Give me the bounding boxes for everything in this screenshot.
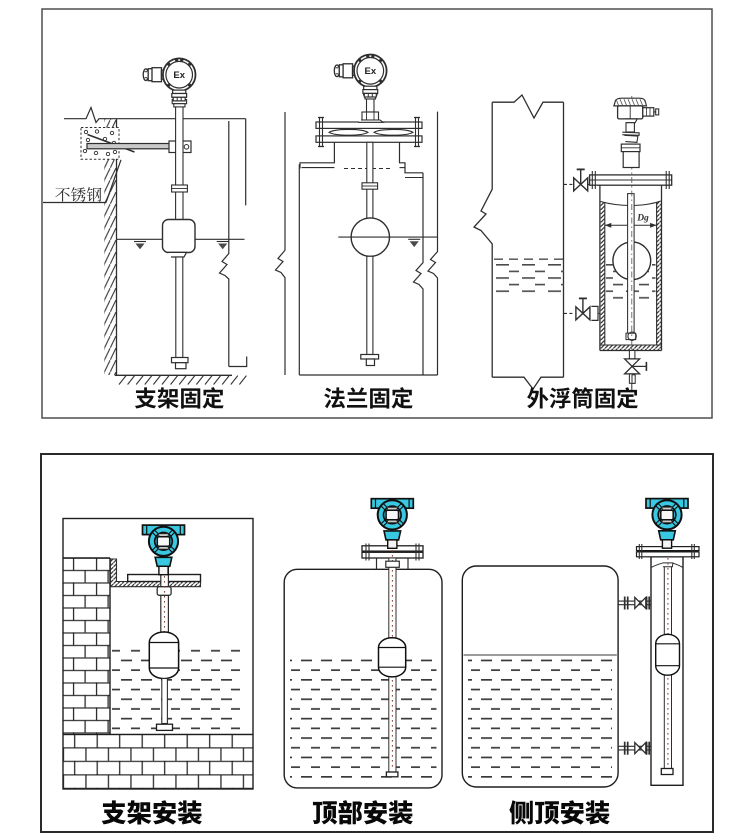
svg-text:Dg: Dg <box>636 214 649 224</box>
